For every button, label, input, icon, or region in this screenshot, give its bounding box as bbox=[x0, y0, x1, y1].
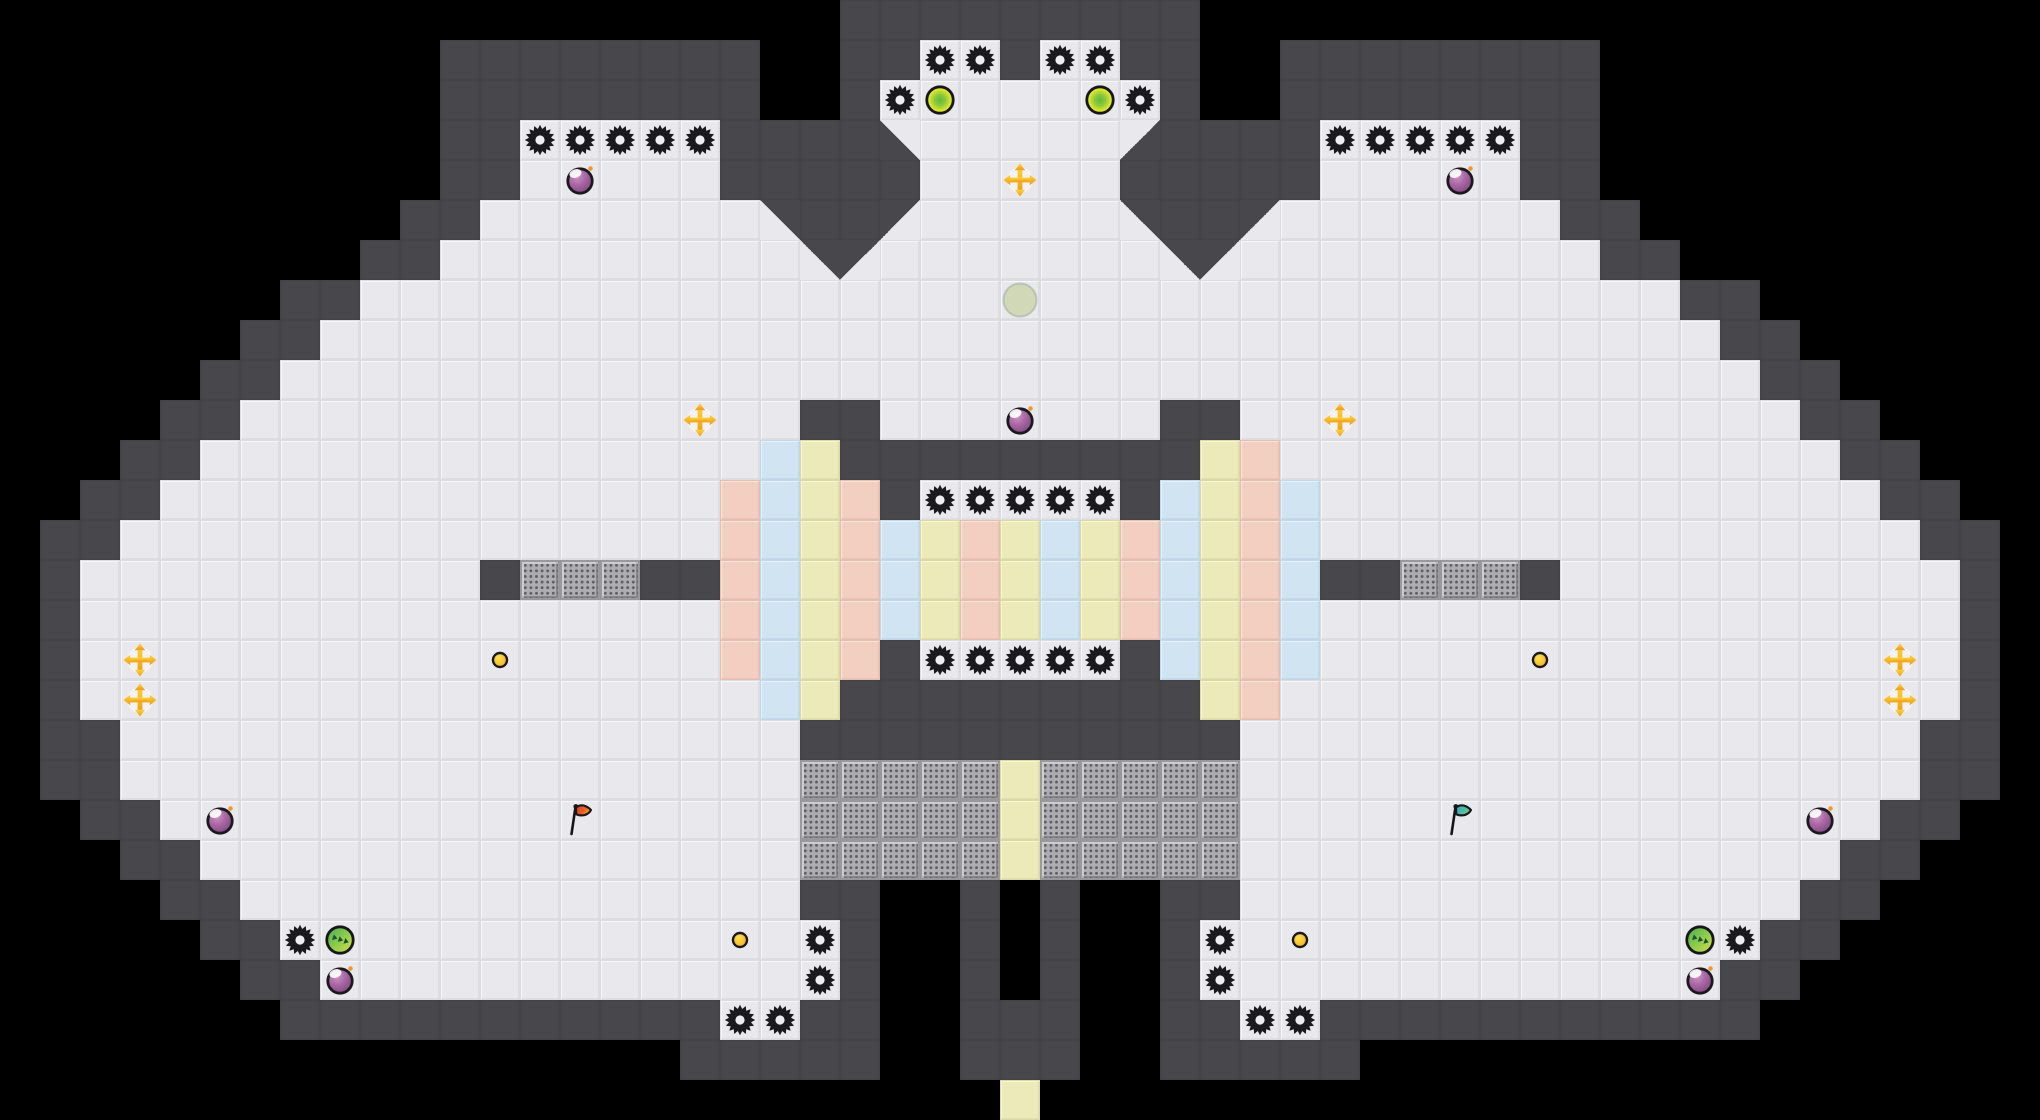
gold-cross bbox=[1880, 640, 1920, 680]
gear-mine bbox=[1480, 120, 1520, 160]
gear-mine bbox=[1080, 40, 1120, 80]
gear-mine bbox=[960, 480, 1000, 520]
gold-cross bbox=[120, 640, 160, 680]
gold-nugget bbox=[720, 920, 760, 960]
ghost-orb bbox=[1000, 280, 1040, 320]
purple-bomb bbox=[560, 160, 600, 200]
gold-cross bbox=[1320, 400, 1360, 440]
gear-mine bbox=[1320, 120, 1360, 160]
level-map[interactable] bbox=[0, 0, 2040, 1120]
gear-mine bbox=[1280, 1000, 1320, 1040]
purple-bomb bbox=[1000, 400, 1040, 440]
gear-mine bbox=[1200, 960, 1240, 1000]
gold-nugget bbox=[1280, 920, 1320, 960]
red-flag bbox=[560, 800, 600, 840]
gear-mine bbox=[920, 40, 960, 80]
gear-mine bbox=[920, 640, 960, 680]
bounce-orb bbox=[920, 80, 960, 120]
gear-mine bbox=[960, 640, 1000, 680]
gear-mine bbox=[1120, 80, 1160, 120]
gear-mine bbox=[1080, 640, 1120, 680]
gear-mine bbox=[640, 120, 680, 160]
bounce-orb bbox=[1080, 80, 1120, 120]
purple-bomb bbox=[1800, 800, 1840, 840]
gear-mine bbox=[1080, 480, 1120, 520]
gear-mine bbox=[1440, 120, 1480, 160]
object-layer bbox=[0, 0, 2040, 1120]
green-striped-orb bbox=[1680, 920, 1720, 960]
gear-mine bbox=[960, 40, 1000, 80]
gear-mine bbox=[1040, 640, 1080, 680]
gear-mine bbox=[760, 1000, 800, 1040]
gear-mine bbox=[560, 120, 600, 160]
gear-mine bbox=[800, 920, 840, 960]
teal-flag bbox=[1440, 800, 1480, 840]
gear-mine bbox=[720, 1000, 760, 1040]
purple-bomb bbox=[200, 800, 240, 840]
gear-mine bbox=[800, 960, 840, 1000]
purple-bomb bbox=[1680, 960, 1720, 1000]
gold-cross bbox=[120, 680, 160, 720]
gear-mine bbox=[1360, 120, 1400, 160]
gold-nugget bbox=[480, 640, 520, 680]
gear-mine bbox=[1400, 120, 1440, 160]
gear-mine bbox=[1720, 920, 1760, 960]
gear-mine bbox=[880, 80, 920, 120]
gold-nugget bbox=[1520, 640, 1560, 680]
green-striped-orb bbox=[320, 920, 360, 960]
gear-mine bbox=[1200, 920, 1240, 960]
gear-mine bbox=[520, 120, 560, 160]
gear-mine bbox=[1040, 40, 1080, 80]
gold-cross bbox=[680, 400, 720, 440]
gold-cross bbox=[1000, 160, 1040, 200]
gear-mine bbox=[1000, 480, 1040, 520]
gear-mine bbox=[1000, 640, 1040, 680]
gear-mine bbox=[1240, 1000, 1280, 1040]
gear-mine bbox=[280, 920, 320, 960]
gear-mine bbox=[920, 480, 960, 520]
gear-mine bbox=[600, 120, 640, 160]
gear-mine bbox=[680, 120, 720, 160]
purple-bomb bbox=[320, 960, 360, 1000]
gold-cross bbox=[1880, 680, 1920, 720]
purple-bomb bbox=[1440, 160, 1480, 200]
gear-mine bbox=[1040, 480, 1080, 520]
